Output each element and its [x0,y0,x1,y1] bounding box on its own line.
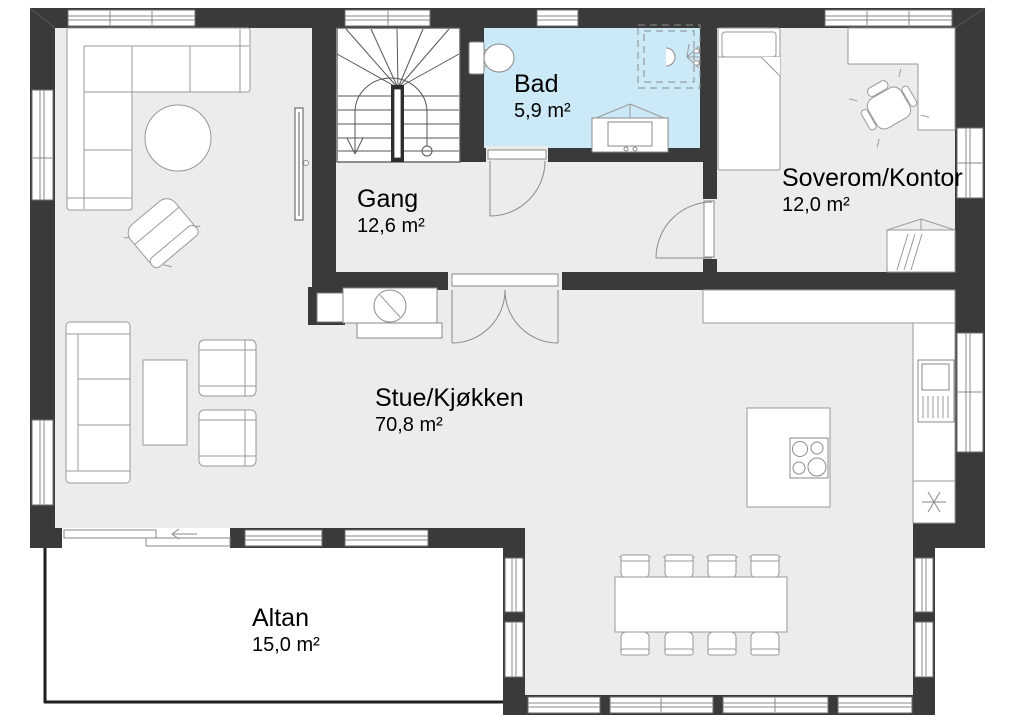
room-label-altan: Altan [252,604,309,632]
room-label-bad: Bad [514,70,558,98]
dining-chair [708,632,736,655]
wall-south-corridor [312,272,985,290]
window-top-1 [68,10,195,26]
wall-bath-soverom [700,8,717,162]
window-stue-bottom-1 [245,530,322,546]
dining-chair [749,555,781,578]
window-dining-right-1 [915,558,933,612]
window-dining-bottom-3 [723,697,828,713]
room-label-soverom: Soverom/Kontor [782,164,963,192]
dining-chair [663,555,695,578]
room-label-stue: Stue/Kjøkken [375,384,524,412]
window-dining-left-2 [505,622,523,677]
window-dining-bottom-2 [610,697,713,713]
bed [718,28,780,170]
dining-chair [621,632,649,655]
kitchen-island [747,408,830,507]
wardrobe [887,219,955,272]
freezer [913,481,955,523]
armchair-mid-2 [199,410,256,466]
room-area-gang: 12,6 m² [357,215,425,237]
kitchen-counter-top [703,290,955,323]
sofa-left [66,322,130,483]
window-top-4 [825,10,952,26]
floor-plan: Bad 5,9 m² Gang 12,6 m² Soverom/Kontor 1… [0,0,1018,720]
toilet [469,42,514,74]
dining-chair [665,632,693,655]
window-dining-left-1 [505,558,523,612]
room-area-soverom: 12,0 m² [782,194,850,216]
kitchen-sink [918,360,954,422]
room-area-bad: 5,9 m² [514,100,571,122]
room-label-gang: Gang [357,185,418,213]
dining-chair [751,632,779,655]
window-dining-bottom-4 [838,697,912,713]
staircase [337,28,460,162]
room-area-altan: 15,0 m² [252,634,320,656]
window-left-1 [32,90,53,200]
window-top-2 [345,10,430,26]
dining-chair [619,555,651,578]
wall-stair-west [312,28,336,286]
round-rug [145,105,211,171]
armchair-mid-1 [199,340,256,396]
stair-newel-slot [394,89,401,158]
coffee-table [143,360,187,445]
window-dining-bottom-1 [528,697,600,713]
window-dining-right-2 [915,622,933,677]
window-stue-bottom-2 [345,530,428,546]
window-left-2 [32,420,53,505]
window-right-kitchen [957,333,983,452]
dining-chair [706,555,738,578]
room-area-stue: 70,8 m² [375,414,443,436]
dining-table [615,577,787,632]
sliding-door-altan [62,528,230,548]
floor-plan-page: Bad 5,9 m² Gang 12,6 m² Soverom/Kontor 1… [0,0,1018,720]
window-top-3 [537,10,578,26]
